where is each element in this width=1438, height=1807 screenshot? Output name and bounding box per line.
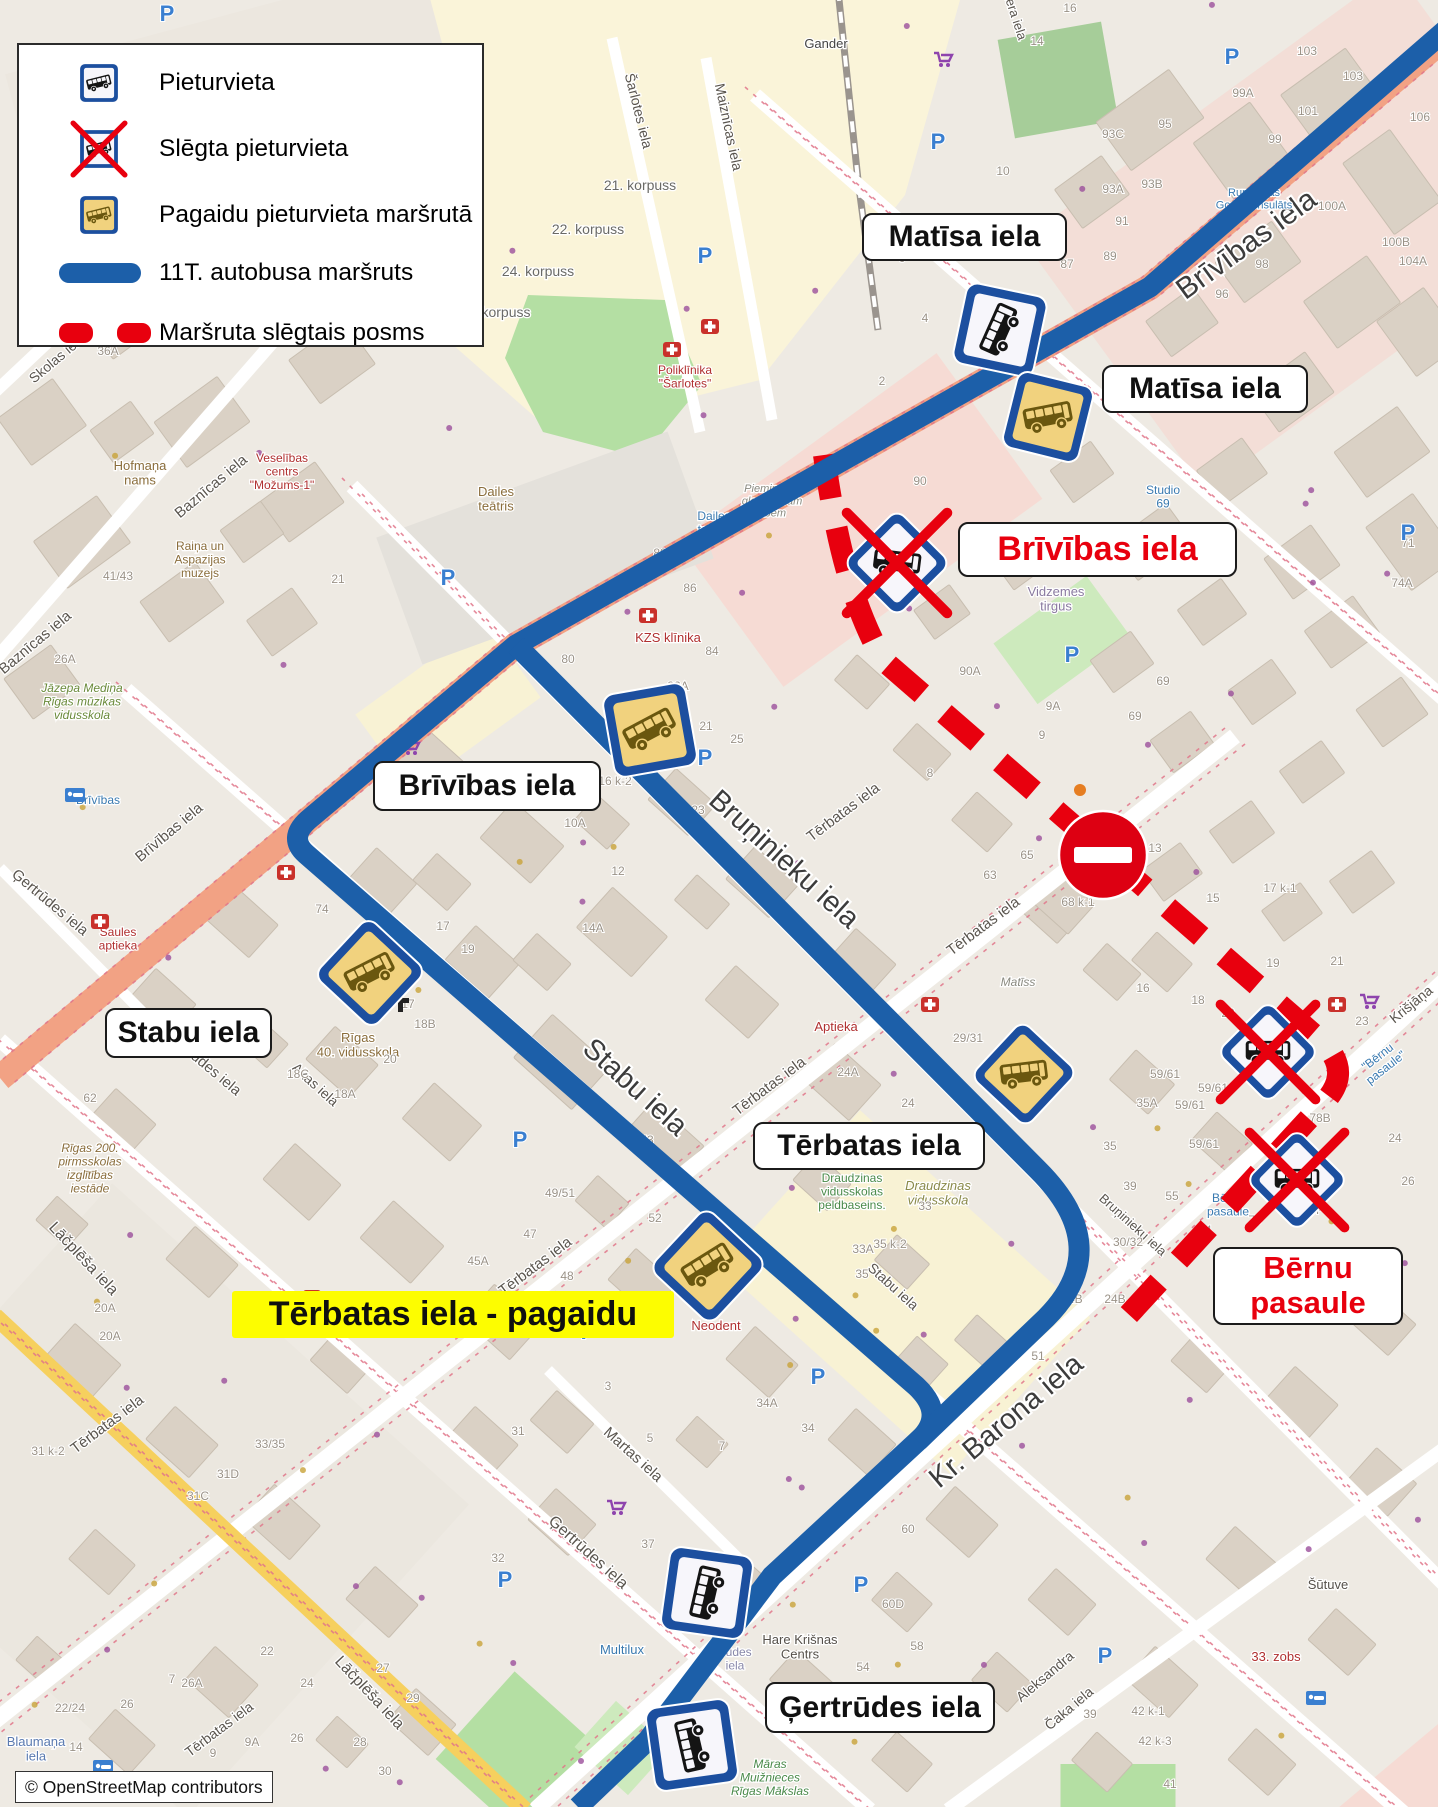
house-number: 84 xyxy=(705,644,719,658)
legend-label: Pieturvieta xyxy=(159,69,275,97)
parking-icon: P xyxy=(698,745,713,770)
house-number: 60 xyxy=(901,1522,915,1536)
house-number: 24B xyxy=(1104,1292,1125,1306)
no-entry-sign xyxy=(1059,811,1147,899)
house-number: 54 xyxy=(856,1660,870,1674)
osm-attribution: © OpenStreetMap contributors xyxy=(15,1771,273,1803)
house-number: 69 xyxy=(1156,674,1170,688)
poi-label: 22. korpuss xyxy=(552,221,624,237)
poi-label: Saulesaptieka xyxy=(99,925,138,952)
poi-label: Multilux xyxy=(600,1642,645,1657)
poi-label: Aptieka xyxy=(814,1019,858,1034)
pharmacy-icon xyxy=(91,914,109,929)
poi-label: Neodent xyxy=(691,1318,741,1333)
house-number: 25 xyxy=(730,732,744,746)
legend-label: Maršruta slēgtais posms xyxy=(159,319,425,347)
house-number: 103 xyxy=(1343,69,1363,83)
temporary-stop-sign xyxy=(601,681,698,778)
fire-icon xyxy=(1074,784,1086,796)
house-number: 9 xyxy=(1039,728,1046,742)
map-callout-terbatas: Tērbatas iela xyxy=(753,1122,985,1170)
legend-row-stop: Pieturvieta xyxy=(59,55,275,111)
house-number: 12 xyxy=(611,864,625,878)
house-number: 49/51 xyxy=(545,1186,575,1200)
house-number: 41 xyxy=(1163,1777,1177,1791)
pharmacy-icon xyxy=(663,342,681,357)
map-callout-terbatas-pagaidu: Tērbatas iela - pagaidu xyxy=(232,1291,674,1338)
house-number: 30 xyxy=(378,1764,392,1778)
house-number: 2 xyxy=(879,374,886,388)
house-number: 86 xyxy=(683,581,697,595)
closed-stop-sign-icon xyxy=(71,121,127,177)
house-number: 106 xyxy=(1410,110,1430,124)
parking-icon: P xyxy=(160,1,175,26)
house-number: 63 xyxy=(983,868,997,882)
house-number: 26 xyxy=(290,1731,304,1745)
house-number: 18B xyxy=(414,1017,435,1031)
poi-label: Draudzinasvidusskola xyxy=(905,1178,971,1208)
house-number: 9 xyxy=(210,1746,217,1760)
pharmacy-icon xyxy=(921,997,939,1012)
house-number: 51 xyxy=(1031,1349,1045,1363)
house-number: 100A xyxy=(1318,199,1346,213)
legend-row-closed-stop: Slēgta pieturvieta xyxy=(59,121,348,177)
poi-label: korpuss xyxy=(481,304,530,320)
house-number: 7 xyxy=(719,1439,726,1453)
house-number: 99A xyxy=(1232,86,1253,100)
bus-stop-sign-icon xyxy=(71,55,127,111)
house-number: 42 k-1 xyxy=(1131,1704,1165,1718)
house-number: 21 xyxy=(331,572,345,586)
house-number: 24 xyxy=(300,1676,314,1690)
house-number: 17 k-1 xyxy=(1263,881,1297,895)
map-callout-bernu-pasaule: Bērnu pasaule xyxy=(1213,1247,1403,1325)
poi-label: Šūtuve xyxy=(1308,1577,1348,1592)
house-number: 93B xyxy=(1141,177,1162,191)
parking-icon: P xyxy=(1401,520,1416,545)
house-number: 35A xyxy=(1136,1096,1157,1110)
house-number: 89 xyxy=(1103,249,1117,263)
house-number: 60D xyxy=(882,1597,904,1611)
house-number: 10A xyxy=(564,816,585,830)
poi-label: Raiņa unAspazijasmuzejs xyxy=(174,539,225,580)
house-number: 95 xyxy=(1158,117,1172,131)
parking-icon: P xyxy=(498,1567,513,1592)
house-number: 14 xyxy=(1030,34,1044,48)
house-number: 58 xyxy=(910,1639,924,1653)
house-number: 16 xyxy=(1063,1,1077,15)
house-number: 18 xyxy=(1191,993,1205,1007)
house-number: 26 xyxy=(1401,1174,1415,1188)
poi-label: Draudzinasvidusskolaspeldbaseins. xyxy=(818,1171,885,1212)
legend-label: Pagaidu pieturvieta maršrutā xyxy=(159,201,472,229)
parking-icon: P xyxy=(698,243,713,268)
house-number: 8 xyxy=(927,766,934,780)
pharmacy-icon xyxy=(639,608,657,623)
house-number: 17 xyxy=(436,919,450,933)
bus-stop-sign xyxy=(951,281,1048,378)
legend-label: 11T. autobusa maršruts xyxy=(159,259,413,287)
house-number: 48 xyxy=(560,1269,574,1283)
house-number: 99 xyxy=(1268,132,1282,146)
poi-label: Dailesteātris xyxy=(478,484,515,514)
house-number: 33/35 xyxy=(255,1437,285,1451)
house-number: 31C xyxy=(187,1489,209,1503)
map-callout-matisa-2: Matīsa iela xyxy=(1102,365,1308,413)
house-number: 21 xyxy=(1330,954,1344,968)
house-number: 31D xyxy=(217,1467,239,1481)
house-number: 19 xyxy=(1266,956,1280,970)
house-number: 33 xyxy=(918,1199,932,1213)
parking-icon: P xyxy=(441,565,456,590)
house-number: 90A xyxy=(959,664,980,678)
map-screenshot: Brīvības ielaBruņinieku ielaStabu ielaKr… xyxy=(0,0,1438,1807)
poi-label: 24. korpuss xyxy=(502,263,574,279)
parking-icon: P xyxy=(513,1127,528,1152)
house-number: 4 xyxy=(922,311,929,325)
closed-segment-icon xyxy=(59,323,93,343)
legend-row-temp-stop: Pagaidu pieturvieta maršrutā xyxy=(59,187,472,243)
house-number: 19 xyxy=(461,942,475,956)
map-callout-brivibas: Brīvības iela xyxy=(373,761,601,811)
house-number: 31 xyxy=(511,1424,525,1438)
house-number: 101 xyxy=(1298,104,1318,118)
closed-stop-sign xyxy=(1246,1129,1348,1231)
poi-label: 33. zobs xyxy=(1251,1649,1301,1664)
closed-stop-sign xyxy=(1217,1001,1319,1103)
house-number: 42 k-3 xyxy=(1138,1734,1172,1748)
pharmacy-icon xyxy=(1328,997,1346,1012)
house-number: 29 xyxy=(406,1691,420,1705)
house-number: 74 xyxy=(315,902,329,916)
house-number: 91 xyxy=(1115,214,1129,228)
house-number: 23 xyxy=(1355,1014,1369,1028)
house-number: 55 xyxy=(1165,1189,1179,1203)
house-number: 39 xyxy=(1083,1707,1097,1721)
house-number: 24 xyxy=(901,1096,915,1110)
house-number: 93C xyxy=(1102,127,1124,141)
house-number: 14 xyxy=(69,1740,83,1754)
closed-stop-sign xyxy=(843,509,950,616)
house-number: 35 xyxy=(855,1267,869,1281)
map-legend: Pieturvieta Slēgta pieturvieta Pagaidu p… xyxy=(17,43,484,347)
house-number: 34A xyxy=(756,1396,777,1410)
pharmacy-icon xyxy=(277,865,295,880)
parking-icon: P xyxy=(931,129,946,154)
house-number: 104A xyxy=(1399,254,1427,268)
house-number: 35 xyxy=(1103,1139,1117,1153)
house-number: 26A xyxy=(181,1676,202,1690)
parking-icon: P xyxy=(1065,642,1080,667)
house-number: 34 xyxy=(801,1421,815,1435)
hotel-icon xyxy=(65,788,85,802)
legend-label: Slēgta pieturvieta xyxy=(159,135,348,163)
parking-icon: P xyxy=(1225,44,1240,69)
house-number: 3 xyxy=(605,1379,612,1393)
house-number: 47 xyxy=(523,1227,537,1241)
house-number: 37 xyxy=(641,1537,655,1551)
house-number: 41/43 xyxy=(103,569,133,583)
house-number: 13 xyxy=(1148,841,1162,855)
house-number: 30/32 xyxy=(1113,1235,1143,1249)
house-number: 18A xyxy=(334,1087,355,1101)
house-number: 74A xyxy=(1391,576,1412,590)
house-number: 100B xyxy=(1382,235,1410,249)
house-number: 14A xyxy=(582,921,603,935)
house-number: 65 xyxy=(1020,848,1034,862)
house-number: 24 xyxy=(1388,1131,1402,1145)
house-number: 21 xyxy=(699,719,713,733)
poi-label: 21. korpuss xyxy=(604,177,676,193)
house-number: 26A xyxy=(54,652,75,666)
house-number: 59/61 xyxy=(1175,1098,1205,1112)
house-number: 24A xyxy=(837,1065,858,1079)
poi-label: Gander xyxy=(804,36,848,51)
house-number: 69 xyxy=(1128,709,1142,723)
house-number: 5 xyxy=(647,1431,654,1445)
house-number: 39 xyxy=(1123,1179,1137,1193)
house-number: 33A xyxy=(852,1242,873,1256)
house-number: 103 xyxy=(1297,44,1317,58)
house-number: 22 xyxy=(260,1644,274,1658)
pharmacy-icon xyxy=(701,319,719,334)
house-number: 22/24 xyxy=(55,1701,85,1715)
house-number: 93A xyxy=(1102,182,1123,196)
house-number: 10 xyxy=(996,164,1010,178)
house-number: 98 xyxy=(1255,257,1269,271)
route-line-icon xyxy=(59,263,141,283)
map-callout-matisa-1: Matīsa iela xyxy=(862,213,1067,261)
legend-row-route: 11T. autobusa maršruts xyxy=(59,259,413,287)
house-number: 26 xyxy=(120,1697,134,1711)
map-callout-brivibas-closed: Brīvības iela xyxy=(958,522,1237,577)
map-callout-gertrudes: Ģertrūdes iela xyxy=(765,1682,995,1733)
hotel-icon xyxy=(1306,1691,1326,1705)
house-number: 20 xyxy=(383,1052,397,1066)
house-number: 16 xyxy=(1136,981,1150,995)
house-number: 9A xyxy=(1046,699,1061,713)
house-number: 62 xyxy=(83,1091,97,1105)
house-number: 59/61 xyxy=(1150,1067,1180,1081)
parking-icon: P xyxy=(1098,1643,1113,1668)
house-number: 7 xyxy=(169,1672,176,1686)
parking-icon: P xyxy=(811,1364,826,1389)
closed-segment-icon xyxy=(117,323,151,343)
house-number: 35 k-2 xyxy=(873,1237,907,1251)
house-number: 90 xyxy=(913,474,927,488)
poi-label: Matīss xyxy=(1001,975,1036,989)
house-number: 9A xyxy=(245,1735,260,1749)
house-number: 27 xyxy=(376,1661,390,1675)
house-number: 28 xyxy=(353,1735,367,1749)
house-number: 80 xyxy=(561,652,575,666)
house-number: 15 xyxy=(1206,891,1220,905)
house-number: 31 k-2 xyxy=(31,1444,65,1458)
house-number: 20A xyxy=(94,1301,115,1315)
parking-icon: P xyxy=(854,1572,869,1597)
house-number: 52 xyxy=(648,1211,662,1225)
house-number: 29/31 xyxy=(953,1031,983,1045)
legend-row-closed-segment: Maršruta slēgtais posms xyxy=(59,319,425,347)
house-number: 59/61 xyxy=(1189,1137,1219,1151)
map-callout-stabu: Stabu iela xyxy=(105,1008,272,1058)
house-number: 18C xyxy=(287,1067,309,1081)
house-number: 96 xyxy=(1215,287,1229,301)
bus-stop-sign xyxy=(660,1546,755,1641)
poi-label: KZS klīnika xyxy=(635,630,702,645)
house-number: 32 xyxy=(491,1551,505,1565)
poi-label: Poliklīnika"Šarlotes" xyxy=(658,363,712,390)
temporary-stop-sign-icon xyxy=(71,187,127,243)
house-number: 45A xyxy=(467,1254,488,1268)
bus-stop-sign xyxy=(645,1698,740,1793)
house-number: 20A xyxy=(99,1329,120,1343)
